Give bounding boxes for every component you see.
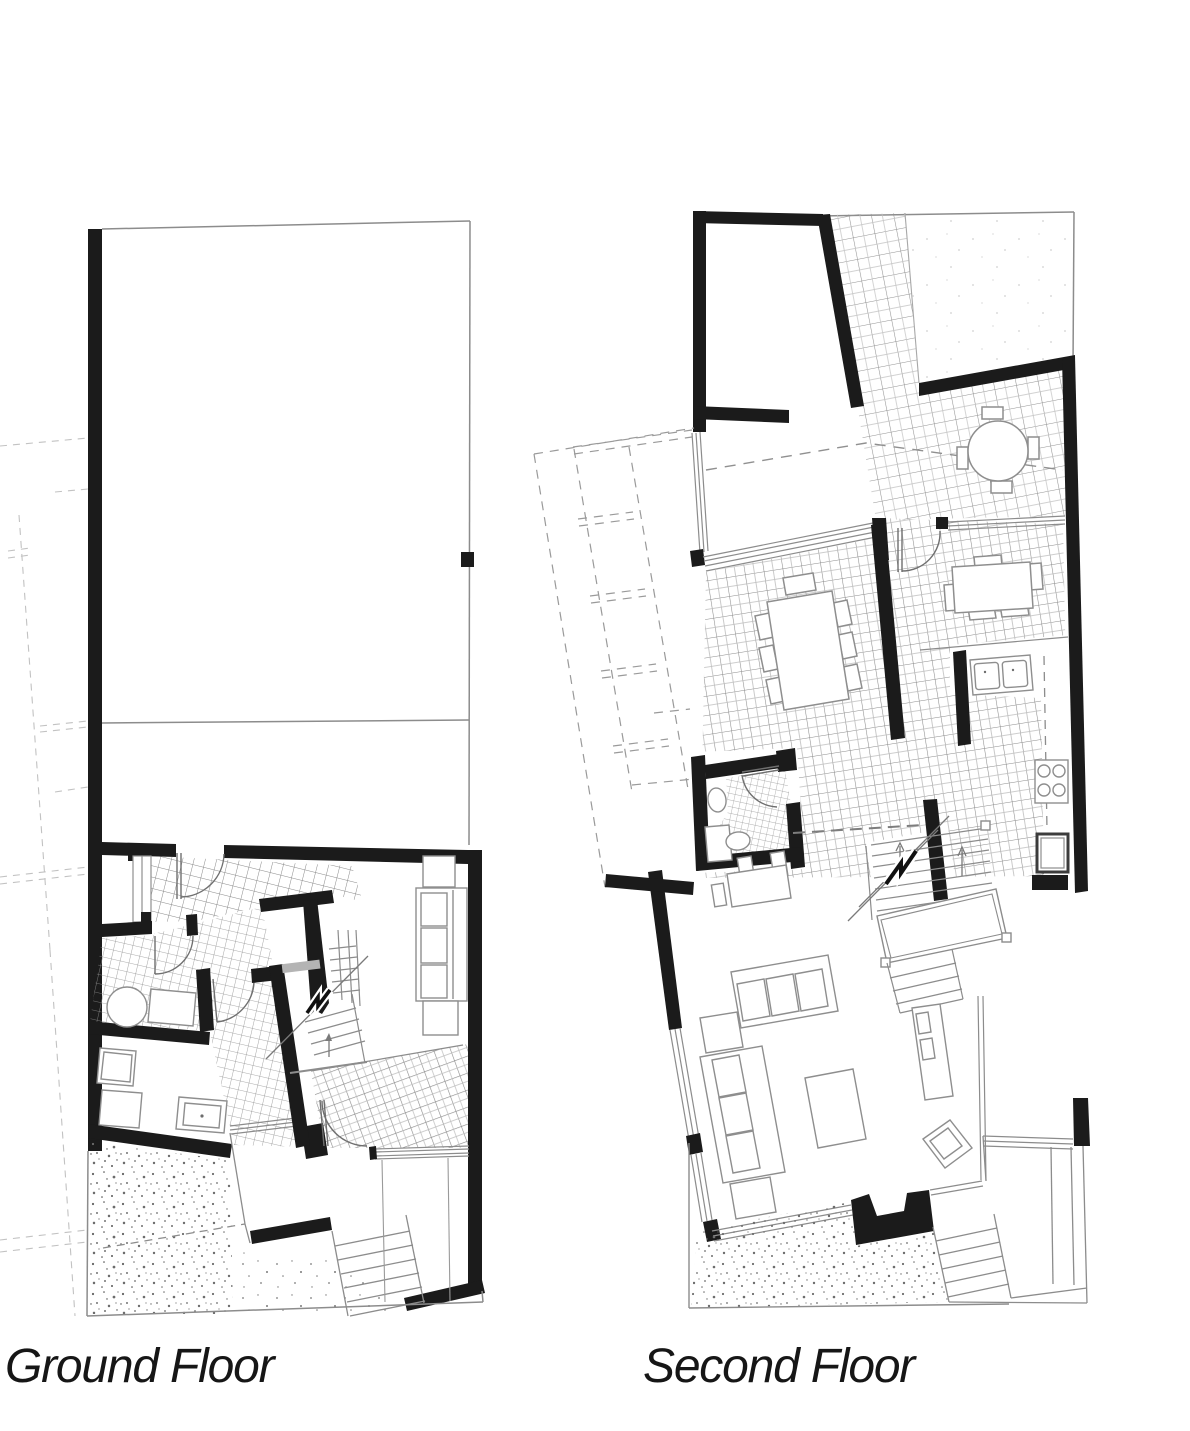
svg-text:Second Floor: Second Floor [643, 1340, 917, 1393]
svg-text:Ground Floor: Ground Floor [5, 1340, 277, 1393]
